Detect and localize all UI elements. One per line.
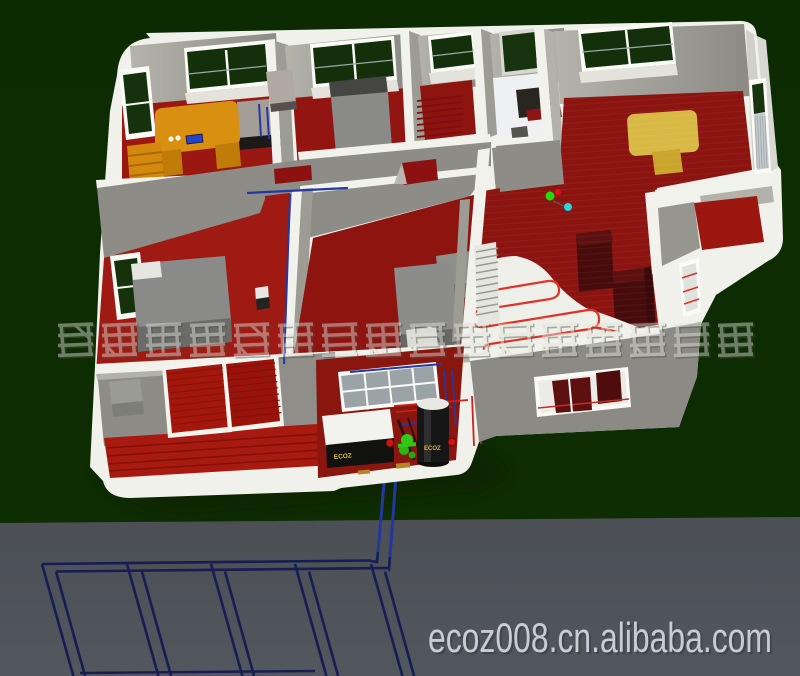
svg-text:ECOZ: ECOZ (424, 446, 441, 452)
svg-text:ecoz008.cn.alibaba.com: ecoz008.cn.alibaba.com (428, 614, 772, 661)
